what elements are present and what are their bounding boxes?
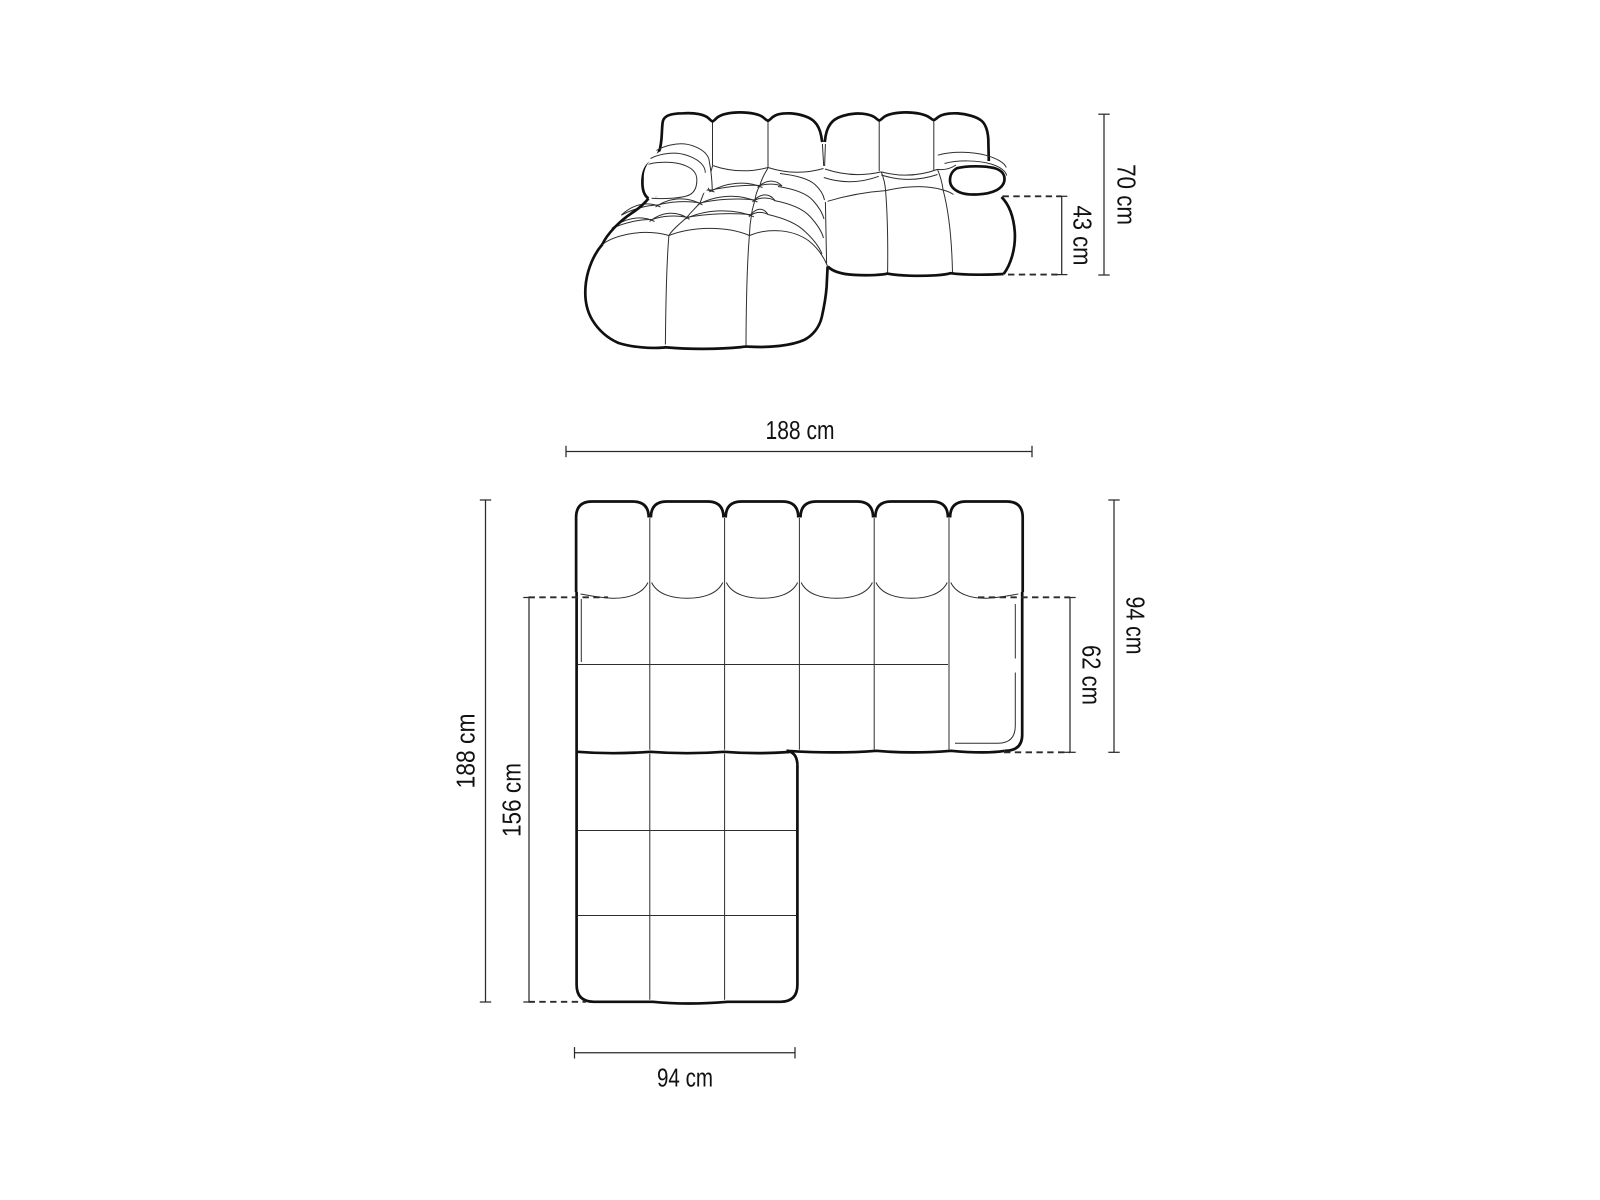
svg-text:70 cm: 70 cm [1112, 164, 1142, 225]
svg-text:62 cm: 62 cm [1077, 645, 1107, 705]
svg-text:94 cm: 94 cm [657, 1063, 713, 1093]
svg-text:188 cm: 188 cm [451, 714, 481, 789]
svg-text:94 cm: 94 cm [1121, 597, 1151, 655]
svg-text:156 cm: 156 cm [497, 763, 527, 837]
svg-text:188 cm: 188 cm [766, 415, 835, 445]
svg-text:43 cm: 43 cm [1068, 206, 1098, 266]
